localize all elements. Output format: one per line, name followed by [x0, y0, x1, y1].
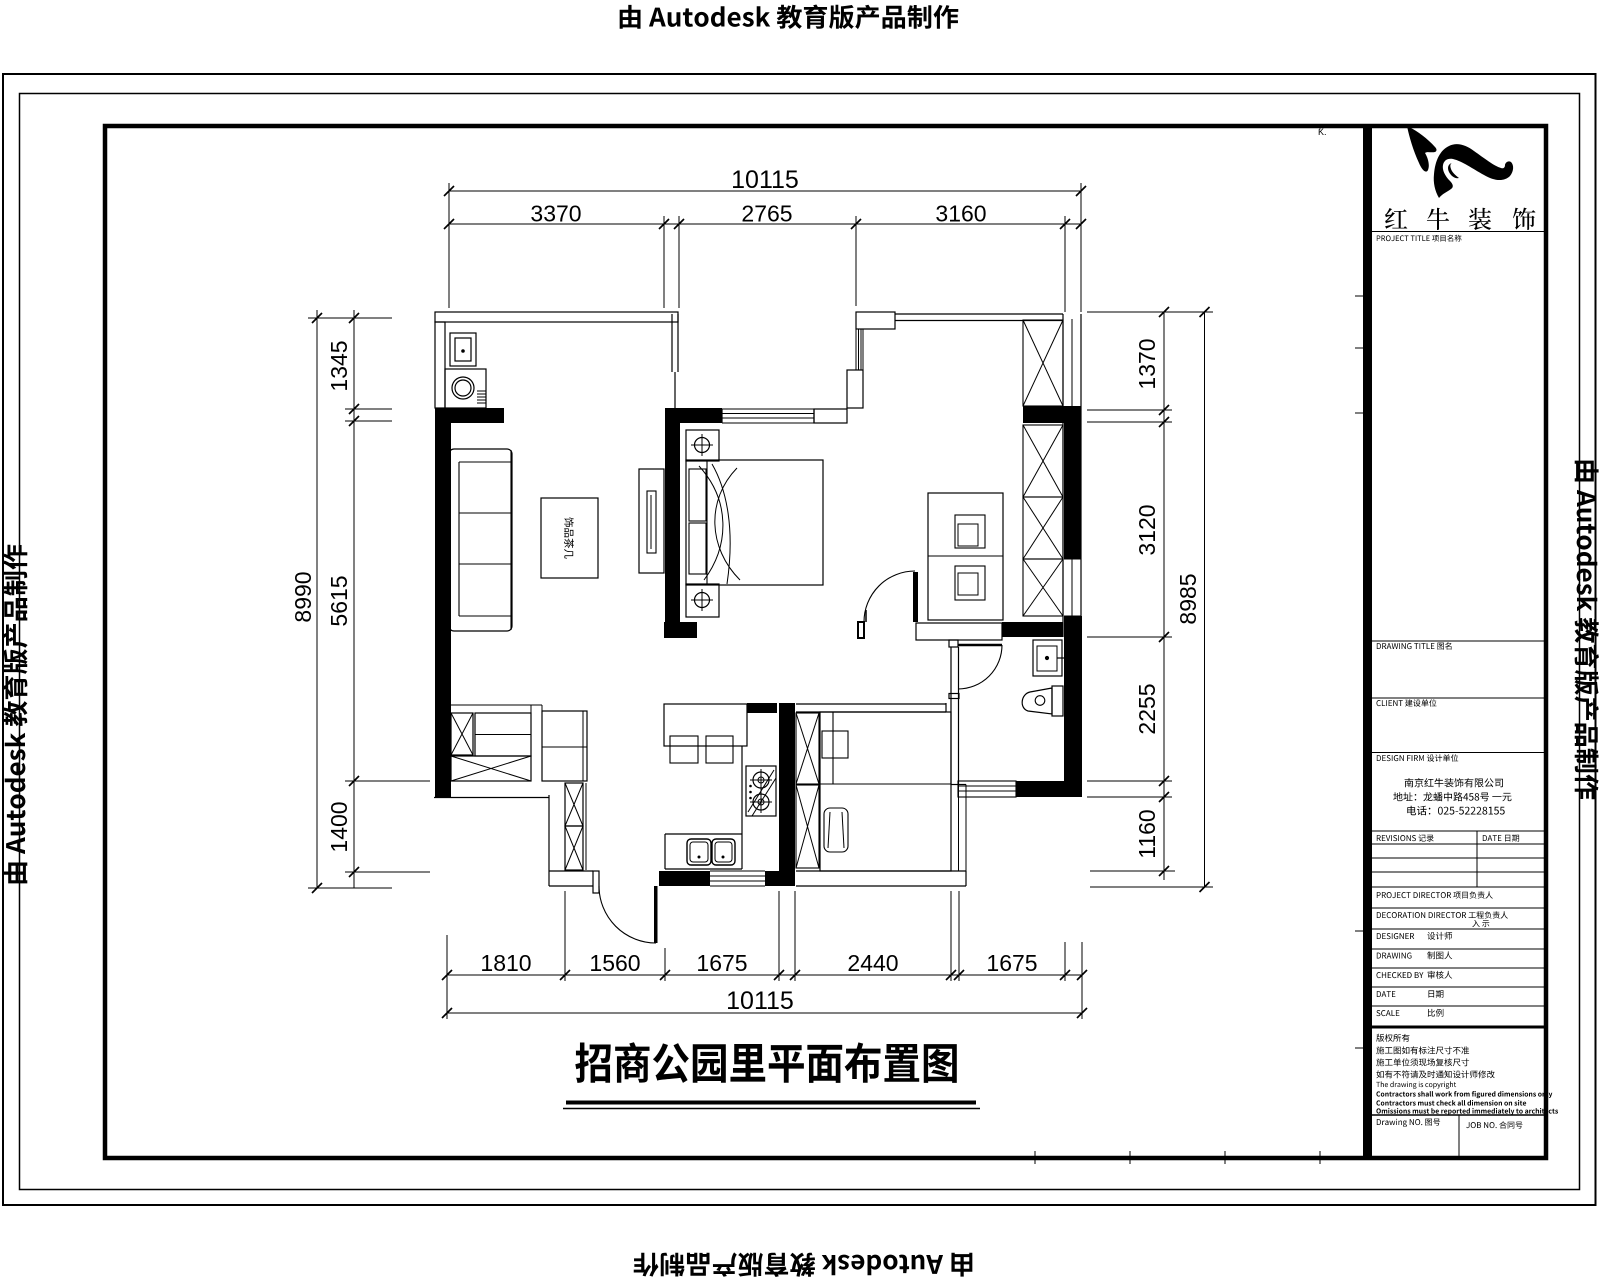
svg-text:10115: 10115	[731, 166, 799, 194]
svg-text:2440: 2440	[847, 950, 898, 976]
svg-text:1160: 1160	[1134, 809, 1160, 858]
svg-text:1370: 1370	[1134, 338, 1160, 389]
svg-text:1400: 1400	[326, 801, 352, 852]
svg-text:1675: 1675	[986, 950, 1037, 976]
svg-text:8990: 8990	[290, 571, 316, 622]
svg-text:1345: 1345	[326, 340, 352, 391]
svg-text:2765: 2765	[741, 201, 792, 227]
svg-text:10115: 10115	[726, 987, 794, 1015]
svg-text:1675: 1675	[696, 950, 747, 976]
svg-text:5615: 5615	[326, 575, 352, 626]
svg-text:1560: 1560	[589, 950, 640, 976]
svg-text:8985: 8985	[1175, 573, 1201, 624]
svg-text:1810: 1810	[480, 950, 531, 976]
svg-text:3160: 3160	[935, 201, 986, 227]
svg-text:2255: 2255	[1134, 683, 1160, 734]
svg-text:Ƙ.: Ƙ.	[1318, 127, 1327, 137]
svg-text:3120: 3120	[1134, 504, 1160, 555]
svg-text:3370: 3370	[530, 201, 581, 227]
